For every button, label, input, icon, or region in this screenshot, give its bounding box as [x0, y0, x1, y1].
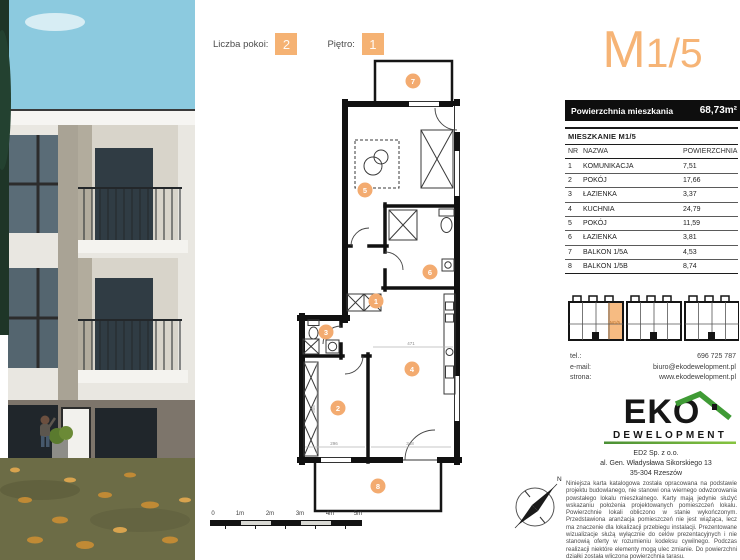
col-nr: NR [565, 148, 583, 155]
table-row: 5 POKÓJ 11,59 [565, 217, 738, 231]
col-area: POWIERZCHNIA [683, 148, 738, 155]
unit-code-sub: 1/5 [646, 30, 703, 76]
unit-code-main: M [602, 21, 645, 79]
scale-label: 3m [296, 511, 304, 517]
compass-icon: N [505, 461, 565, 546]
unit-code: M1/5 [565, 24, 740, 76]
room-circle: 8 [371, 479, 386, 494]
website-value: www.ekodewelopment.pl [659, 373, 736, 384]
room-circle: 6 [423, 265, 438, 280]
svg-text:8: 8 [376, 482, 380, 491]
table-title: MIESZKANIE M1/5 [565, 127, 738, 145]
scale-label: 5m [354, 511, 362, 517]
svg-text:3: 3 [324, 328, 328, 337]
table-row: 3 ŁAZIENKA 3,37 [565, 188, 738, 202]
dimension-label: 296 [330, 441, 338, 446]
contact-block: tel.: 696 725 787 e-mail: biuro@ekodewel… [570, 352, 736, 384]
unit-table: MIESZKANIE M1/5 NR NAZWA POWIERZCHNIA 1 … [565, 127, 738, 274]
header-controls: Liczba pokoi: 2 Piętro: 1 [213, 33, 384, 55]
website-label: strona: [570, 373, 591, 384]
table-row: 7 BALKON 1/5A 4,53 [565, 246, 738, 260]
scale-label: 1m [236, 511, 244, 517]
room-circle: 4 [405, 362, 420, 377]
scale-label: 4m [326, 511, 334, 517]
area-bar: Powierzchnia mieszkania 68,73m² [565, 100, 740, 121]
email-label: e-mail: [570, 363, 591, 374]
svg-text:5: 5 [363, 186, 367, 195]
svg-text:1: 1 [374, 297, 378, 306]
rooms-count-badge: 2 [275, 33, 297, 55]
svg-text:2: 2 [336, 404, 340, 413]
dimension-label: 471 [407, 341, 415, 346]
address-line: al. Gen. Władysława Sikorskiego 13 [577, 459, 735, 469]
dimension-label: 348 [406, 441, 414, 446]
table-row: 6 ŁAZIENKA 3,81 [565, 231, 738, 245]
eko-logo: EKO DEWELOPMENT [600, 390, 740, 447]
logo-text-sub: DEWELOPMENT [613, 430, 727, 441]
phone-value: 696 725 787 [697, 352, 736, 363]
room-circle: 2 [331, 401, 346, 416]
table-header: NR NAZWA POWIERZCHNIA [565, 145, 738, 159]
table-row: 1 KOMUNIKACJA 7,51 [565, 159, 738, 173]
address-line: ED2 Sp. z o.o. [577, 449, 735, 459]
floor-label: Piętro: [327, 39, 354, 50]
room-circle: 3 [319, 325, 334, 340]
legal-disclaimer: Niniejsza karta katalogowa została oprac… [566, 481, 737, 560]
scale-label: 2m [266, 511, 274, 517]
area-label: Powierzchnia mieszkania [571, 106, 673, 116]
table-row: 8 BALKON 1/5B 8,74 [565, 260, 738, 274]
email-value: biuro@ekodewelopment.pl [653, 363, 736, 374]
highlighted-unit-label: M1/5 [610, 320, 621, 325]
floor-badge: 1 [362, 33, 384, 55]
scale-bar: 0 1m 2m 3m 4m 5m [210, 511, 362, 529]
col-name: NAZWA [583, 148, 683, 155]
phone-label: tel.: [570, 352, 581, 363]
company-address: ED2 Sp. z o.o. al. Gen. Władysława Sikor… [577, 449, 735, 479]
address-line: 35-304 Rzeszów [577, 469, 735, 479]
dimension-label: 305 [311, 405, 316, 413]
room-markers: 1 2 3 4 5 6 7 [319, 74, 438, 494]
svg-text:7: 7 [411, 77, 415, 86]
logo-underline [604, 442, 736, 445]
scale-label: 0 [211, 511, 214, 517]
svg-text:6: 6 [428, 268, 432, 277]
room-circle: 7 [406, 74, 421, 89]
room-circle: 5 [358, 183, 373, 198]
rooms-count-label: Liczba pokoi: [213, 39, 268, 50]
table-row: 4 KUCHNIA 24,79 [565, 203, 738, 217]
north-label: N [557, 476, 562, 483]
area-value: 68,73m² [700, 105, 737, 116]
building-photo [0, 0, 195, 560]
floor-plan: 471 296 348 305 1 2 3 4 [293, 56, 478, 516]
room-circle: 1 [369, 294, 384, 309]
table-row: 2 POKÓJ 17,66 [565, 174, 738, 188]
site-plan-strip: M1/5 [567, 288, 739, 350]
catalog-card: Liczba pokoi: 2 Piętro: 1 [0, 0, 740, 560]
